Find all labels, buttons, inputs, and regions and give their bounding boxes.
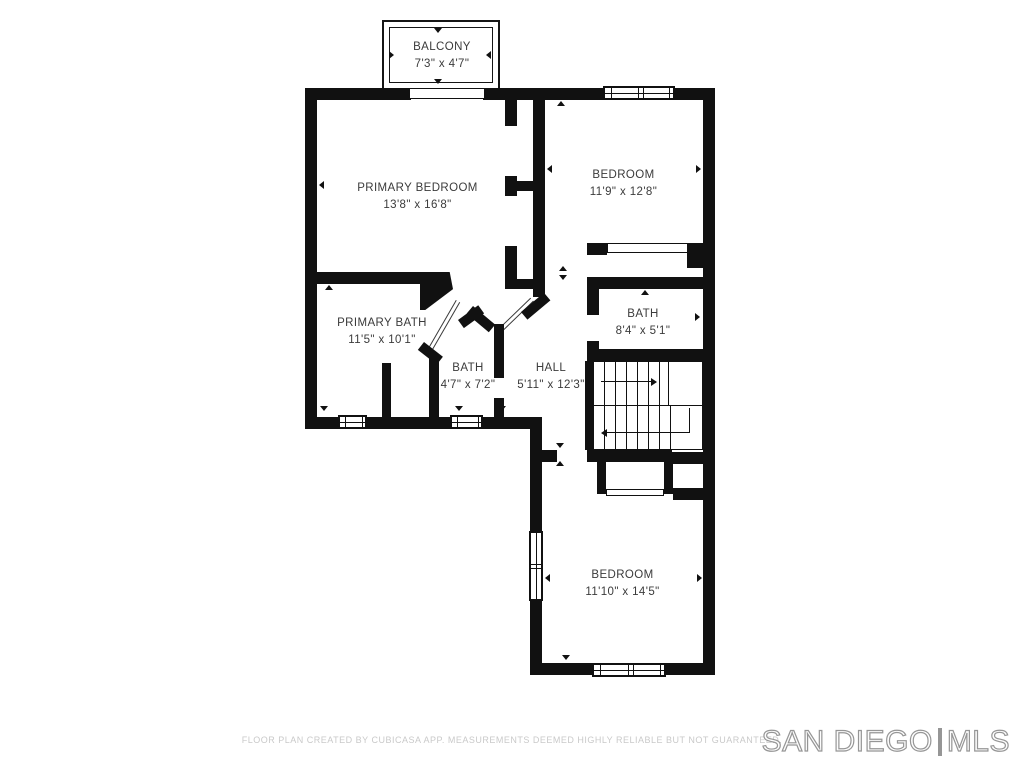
brand-text-left: SAN DIEGO <box>762 727 933 757</box>
window-bath1 <box>450 415 483 429</box>
window-bedroom3-bottom <box>592 663 666 677</box>
floor-plan-canvas: BALCONY 7'3" x 4'7" PRIMARY BEDROOM 13'8… <box>0 0 1024 768</box>
room-dims: 11'5" x 10'1" <box>300 332 464 349</box>
measurement-tick-icon <box>434 28 442 33</box>
room-name: PRIMARY BATH <box>300 315 464 332</box>
wall-bedroom3-bottom-b <box>664 663 715 675</box>
measurement-tick-icon <box>455 406 463 411</box>
measurement-tick-icon <box>556 461 564 466</box>
measurement-tick-icon <box>320 406 328 411</box>
wall-primary-bath-stub <box>382 363 391 419</box>
wall-bedroom2-corner-block <box>687 243 703 268</box>
brand-separator-bar <box>938 728 942 756</box>
wall-left <box>305 88 317 429</box>
room-label-bedroom2: BEDROOM 11'9" x 12'8" <box>551 167 696 201</box>
wall-channel-a-upper <box>505 100 517 126</box>
wall-bedroom2-bottom-stub <box>587 243 607 255</box>
wall-hall-bottom-b <box>587 450 672 462</box>
wall-hall-bottom-a <box>542 450 557 462</box>
room-name: BEDROOM <box>551 167 696 184</box>
room-name: BALCONY <box>377 39 507 56</box>
wall-primary-bath-top <box>305 272 422 284</box>
measurement-tick-icon <box>559 266 567 271</box>
measurement-tick-icon <box>697 574 702 582</box>
measurement-tick-icon <box>319 181 324 189</box>
room-dims: 11'9" x 12'8" <box>551 184 696 201</box>
measurement-tick-icon <box>559 275 567 280</box>
room-label-balcony: BALCONY 7'3" x 4'7" <box>377 39 507 73</box>
wall-top-left <box>305 88 411 100</box>
closet-sliding-door <box>607 243 688 253</box>
wall-right <box>703 88 715 675</box>
room-label-primary-bedroom: PRIMARY BEDROOM 13'8" x 16'8" <box>330 180 505 214</box>
wall-vestibule-right <box>664 462 673 494</box>
brand-text-right: MLS <box>947 727 1010 757</box>
balcony-sliding-door <box>410 88 484 99</box>
room-name: HALL <box>493 360 609 377</box>
wall-top-mid <box>483 88 605 100</box>
wall-bottom-left-a <box>305 417 339 429</box>
measurement-tick-icon <box>562 655 570 660</box>
stair-flight-lower <box>593 406 673 449</box>
window-bedroom2-top <box>603 86 675 100</box>
stair-arrow-down-line <box>607 432 690 433</box>
measurement-tick-icon <box>325 285 333 290</box>
stair-arrow-up-icon <box>651 378 657 386</box>
room-name: BEDROOM <box>550 567 695 584</box>
measurement-tick-icon <box>434 79 442 84</box>
wall-wedge <box>420 272 453 310</box>
wall-hall-bottom-c <box>672 452 715 464</box>
room-label-hall: HALL 5'11" x 12'3" <box>493 360 609 394</box>
wall-bedroom3-bottom-a <box>530 663 594 675</box>
window-bedroom3-left <box>529 531 543 601</box>
wall-vestibule-left <box>597 462 606 494</box>
measurement-tick-icon <box>696 165 701 173</box>
measurement-tick-icon <box>498 406 506 411</box>
stair-arrow-down-icon <box>601 429 607 437</box>
room-dims: 8'4" x 5'1" <box>585 323 701 340</box>
room-label-bedroom3: BEDROOM 11'10" x 14'5" <box>550 567 695 601</box>
room-dims: 7'3" x 4'7" <box>377 56 507 73</box>
room-name: BATH <box>585 306 701 323</box>
room-dims: 11'10" x 14'5" <box>550 584 695 601</box>
vestibule-door <box>606 489 664 496</box>
wall-bath2-top <box>587 277 703 289</box>
room-label-bath2: BATH 8'4" x 5'1" <box>585 306 701 340</box>
measurement-tick-icon <box>641 290 649 295</box>
measurement-tick-icon <box>557 101 565 106</box>
wall-vestibule-ext <box>673 488 703 500</box>
wall-bedroom2-left <box>533 100 545 297</box>
sandiego-mls-logo: SAN DIEGO MLS <box>762 727 1010 757</box>
wall-bedroom3-left-a <box>530 417 542 533</box>
measurement-tick-icon <box>556 443 564 448</box>
window-primary-bath-1 <box>338 415 367 429</box>
room-dims: 5'11" x 12'3" <box>493 377 609 394</box>
room-label-primary-bath: PRIMARY BATH 11'5" x 10'1" <box>300 315 464 349</box>
room-dims: 13'8" x 16'8" <box>330 197 505 214</box>
room-name: PRIMARY BEDROOM <box>330 180 505 197</box>
